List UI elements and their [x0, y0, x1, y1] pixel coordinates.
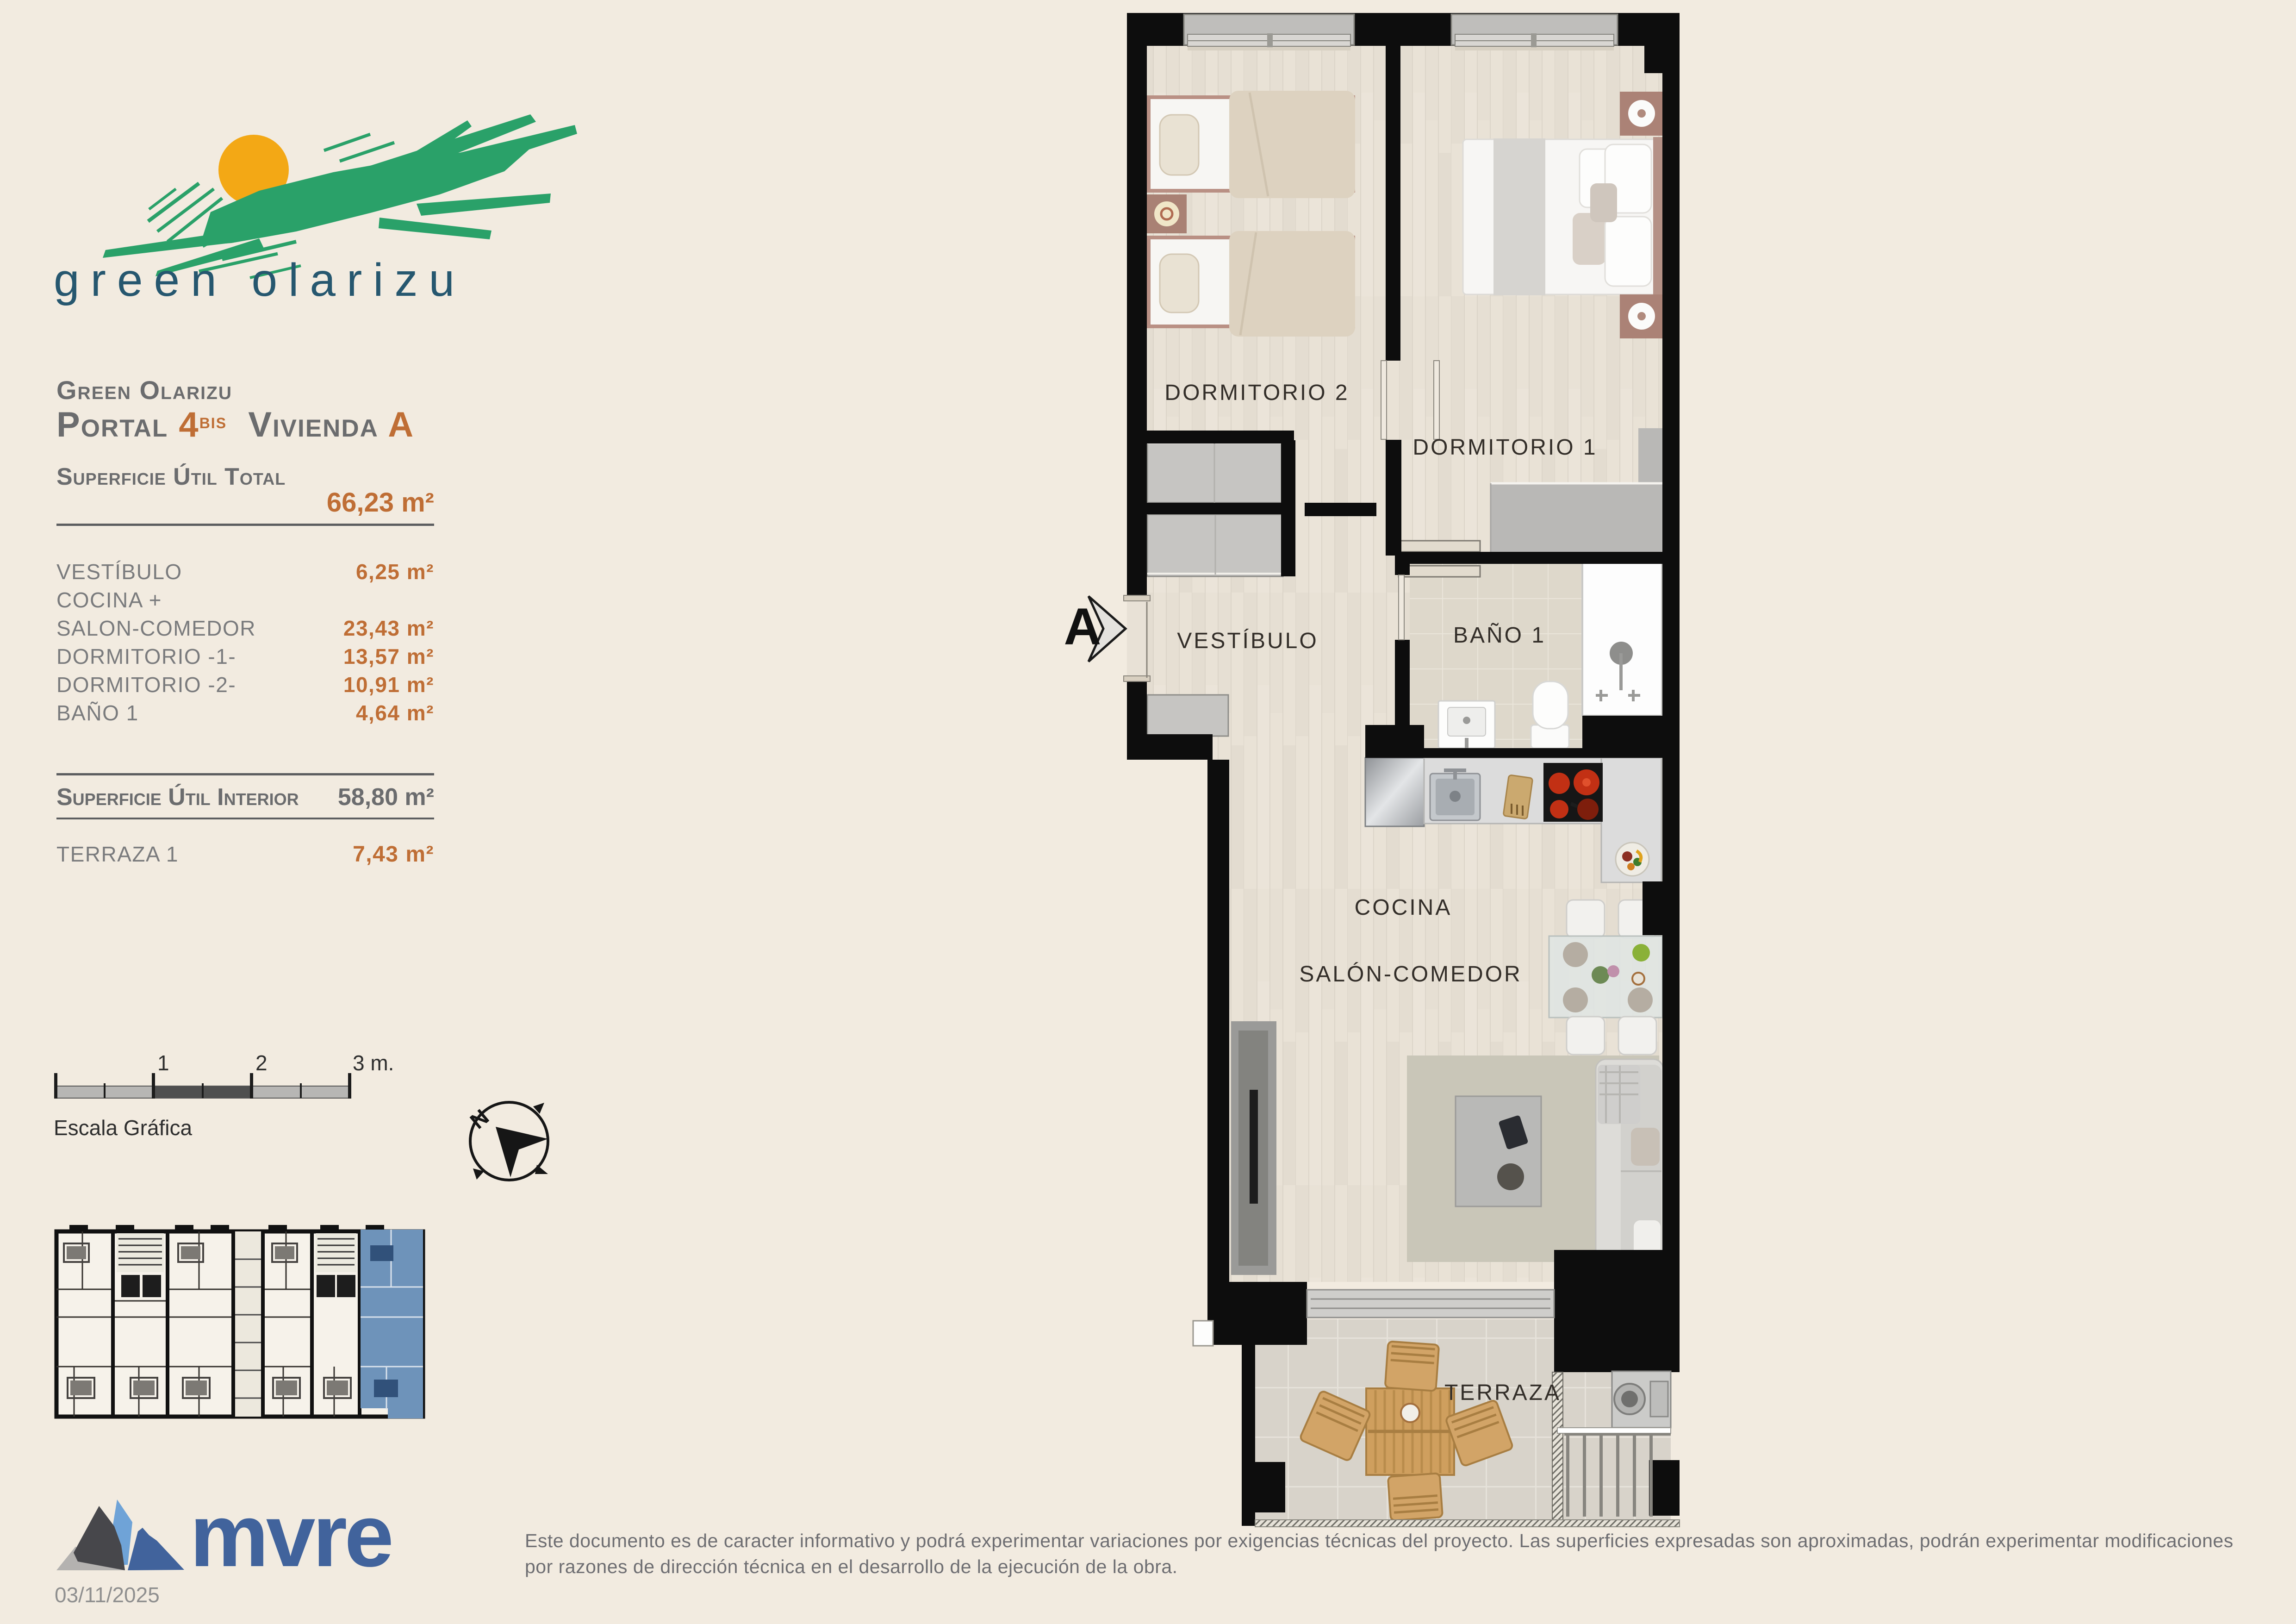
svg-text:VESTÍBULO: VESTÍBULO	[1177, 629, 1318, 653]
svg-text:N: N	[466, 1105, 494, 1134]
svg-text:1: 1	[157, 1051, 169, 1075]
svg-text:3 m.: 3 m.	[353, 1051, 394, 1075]
svg-text:mvre: mvre	[190, 1486, 391, 1585]
svg-text:DORMITORIO 1: DORMITORIO 1	[1412, 435, 1597, 460]
svg-text:TERRAZA: TERRAZA	[1444, 1380, 1561, 1405]
svg-text:2: 2	[255, 1051, 268, 1075]
svg-text:A: A	[1064, 598, 1101, 656]
svg-text:DORMITORIO 2: DORMITORIO 2	[1164, 381, 1349, 405]
svg-text:SALÓN-COMEDOR: SALÓN-COMEDOR	[1299, 962, 1522, 987]
svg-text:BAÑO 1: BAÑO 1	[1453, 623, 1546, 648]
svg-text:COCINA: COCINA	[1355, 895, 1452, 920]
svg-text:Escala Gráfica: Escala Gráfica	[54, 1116, 193, 1140]
